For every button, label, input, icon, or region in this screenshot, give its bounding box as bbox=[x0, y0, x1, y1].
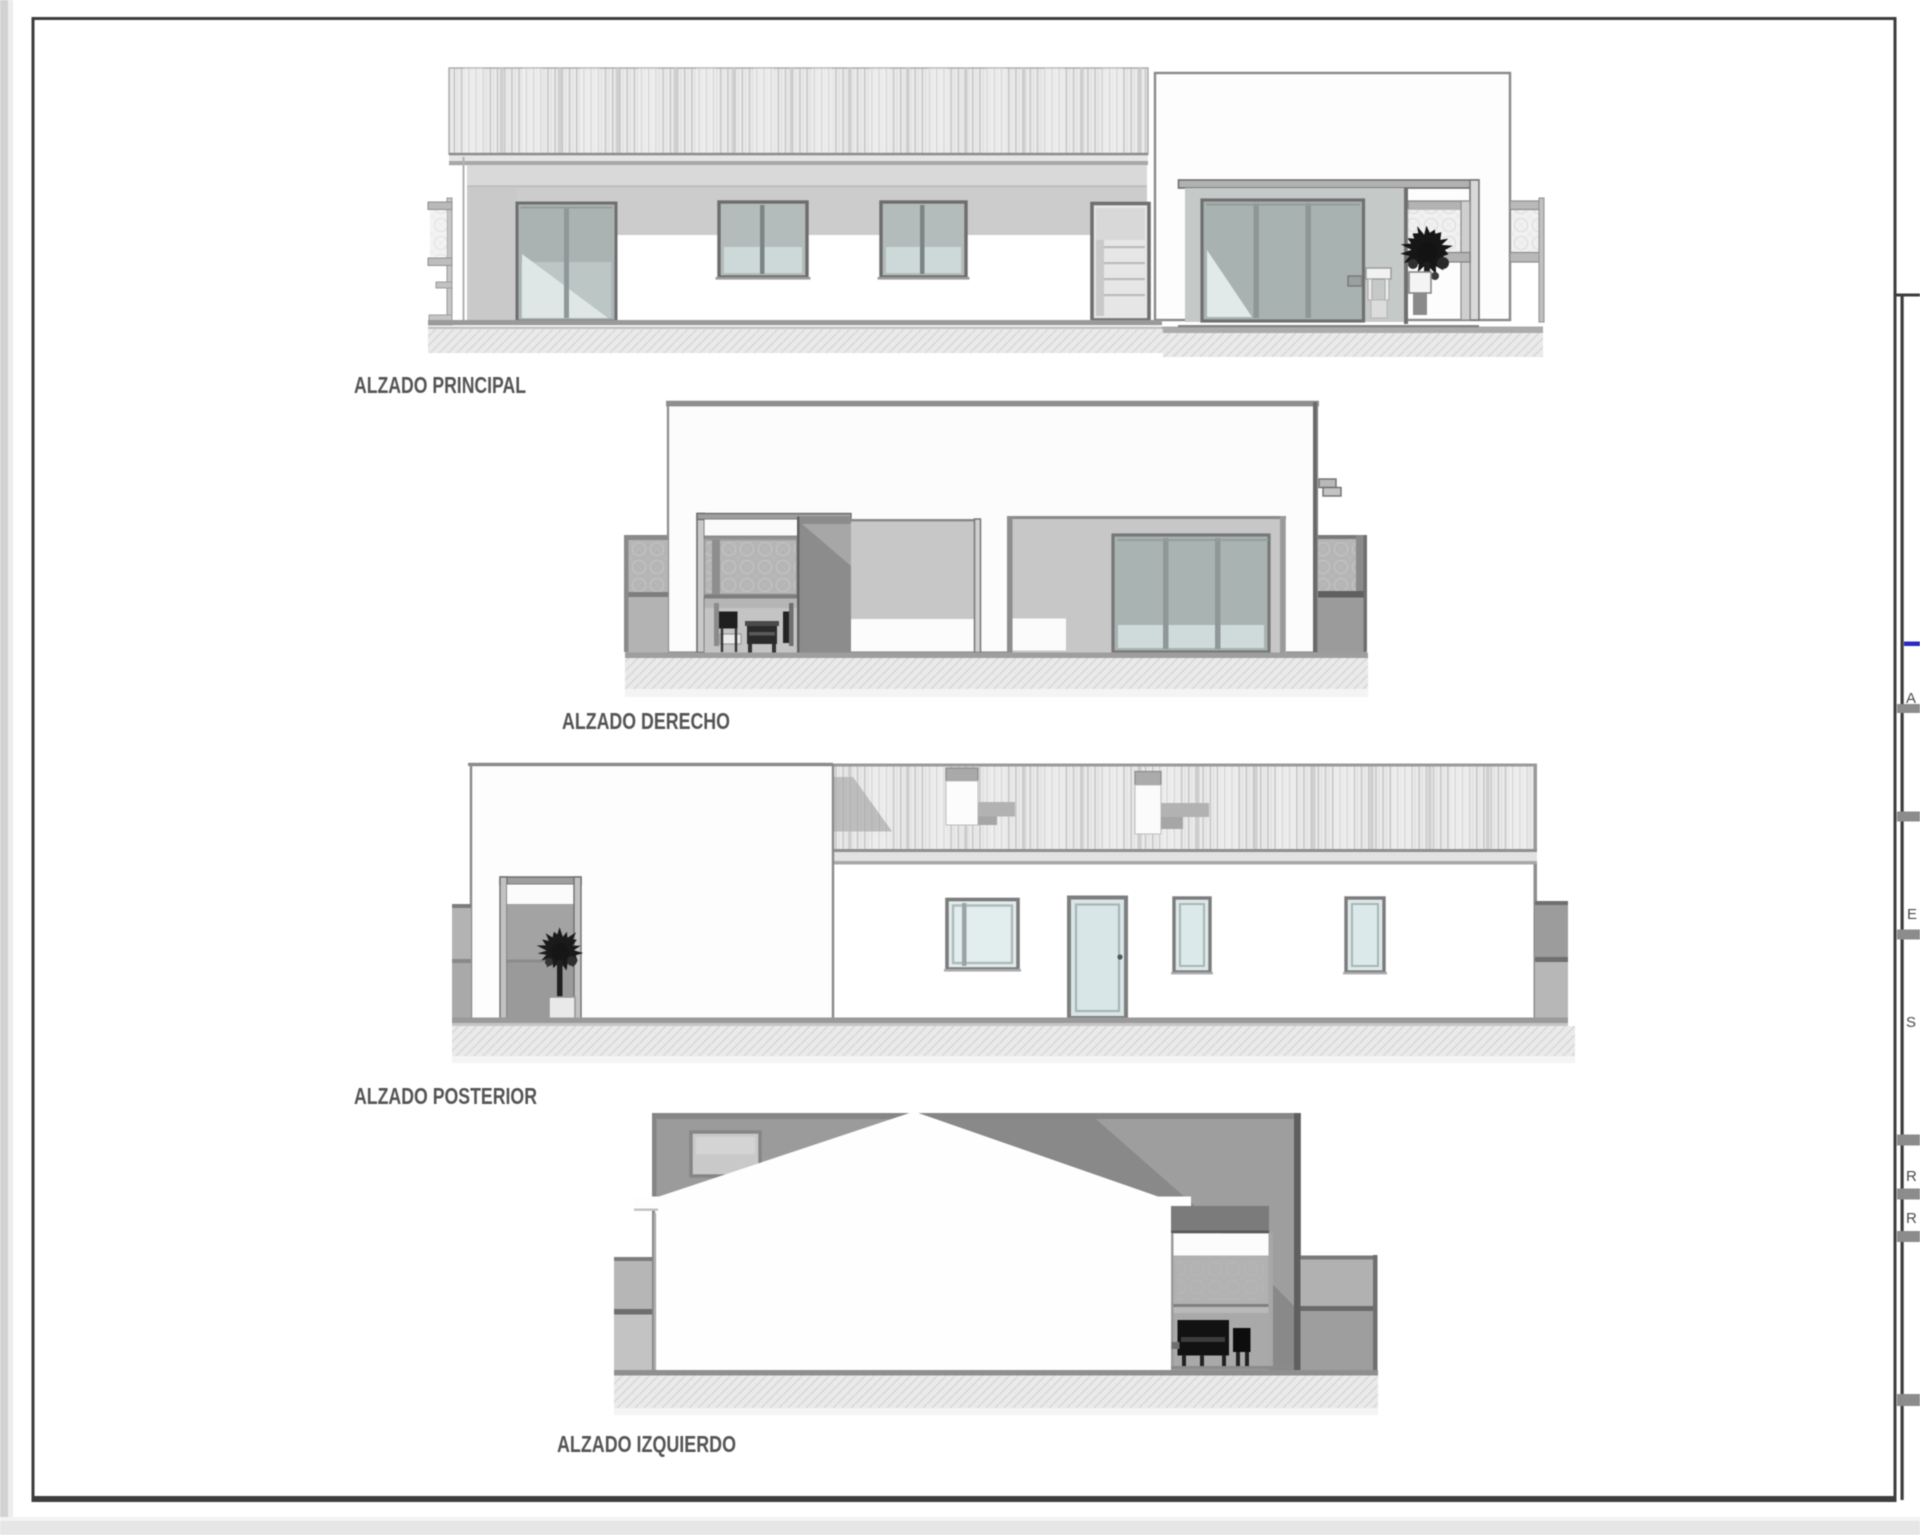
svg-text:ALZADO PRINCIPAL: ALZADO PRINCIPAL bbox=[354, 372, 526, 398]
svg-text:E: E bbox=[1907, 906, 1917, 923]
svg-text:ALZADO DERECHO: ALZADO DERECHO bbox=[562, 708, 730, 734]
svg-text:ALZADO POSTERIOR: ALZADO POSTERIOR bbox=[354, 1083, 537, 1109]
svg-text:S: S bbox=[1906, 1014, 1916, 1031]
svg-text:R: R bbox=[1906, 1210, 1917, 1227]
svg-text:R: R bbox=[1906, 1168, 1917, 1185]
svg-text:ALZADO IZQUIERDO: ALZADO IZQUIERDO bbox=[557, 1431, 736, 1457]
